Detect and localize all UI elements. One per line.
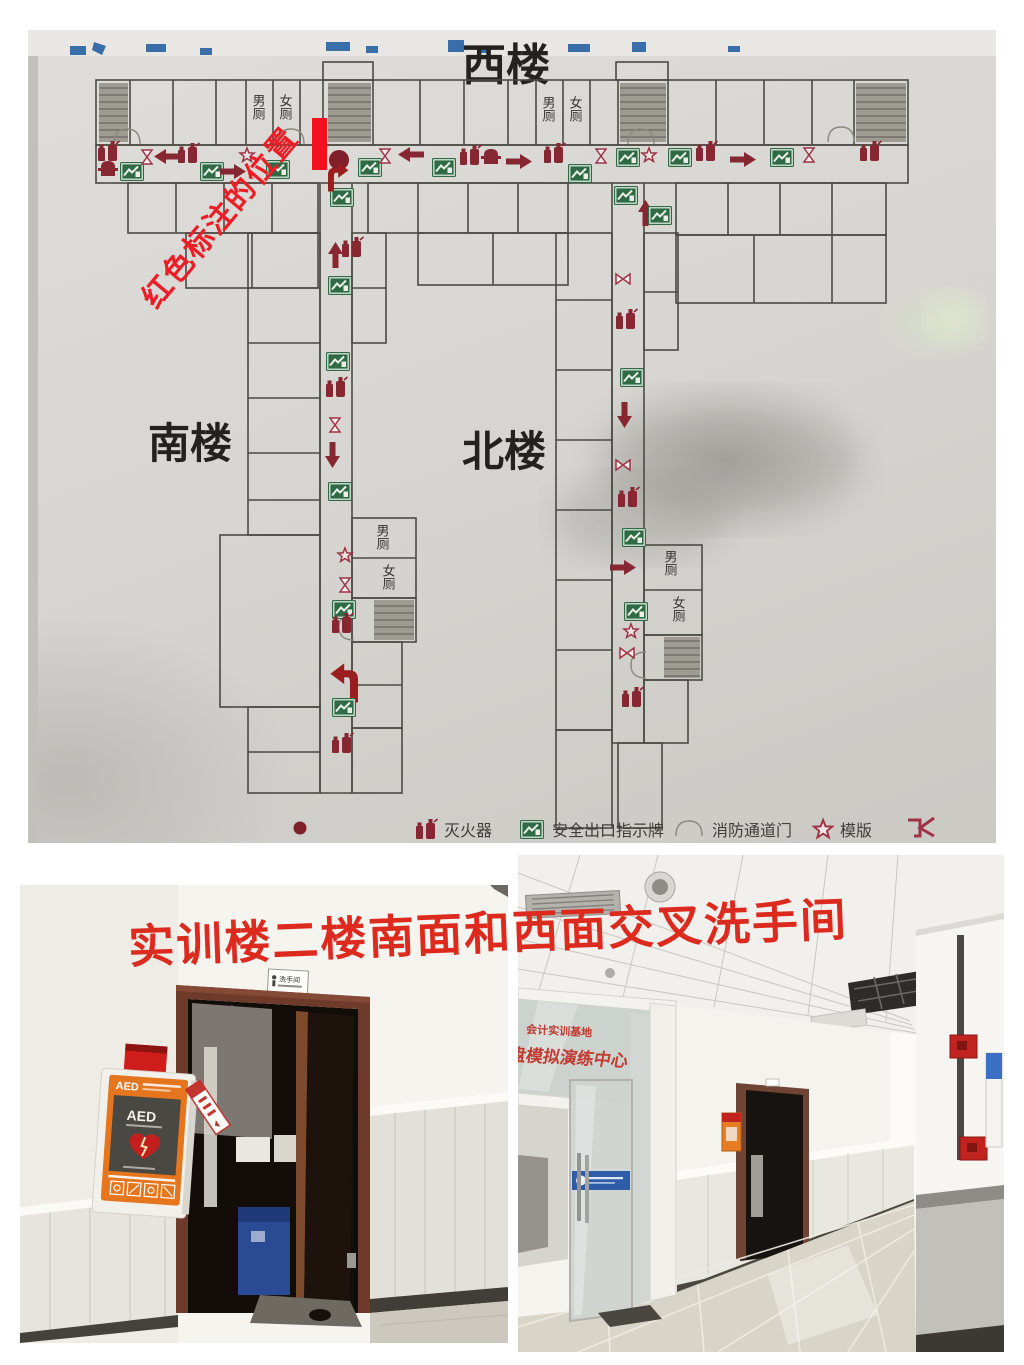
- legend-dot-icon: [294, 822, 307, 835]
- right-column: [916, 913, 1004, 1352]
- south-corridor-icons: [325, 237, 364, 753]
- legend-exit-sign-label: 安全出口指示牌: [552, 822, 664, 840]
- ceiling-vent-small: [525, 891, 620, 919]
- aed-header-text: AED: [115, 1080, 139, 1094]
- ceiling-dome-light: [645, 872, 675, 902]
- door-handle-bar-1: [577, 1153, 581, 1221]
- plan-legend: 灭火器 安全出口指示牌 消防通道门 模版: [294, 818, 935, 840]
- toilet-label-women-south: 女厕: [381, 563, 396, 590]
- interior-notice-1: [236, 1137, 270, 1162]
- toilet-label-women-w1: 女厕: [278, 93, 293, 120]
- toilet-label-men-w2: 男厕: [541, 96, 556, 122]
- door-handle-bar-2: [585, 1155, 589, 1223]
- toilet-label-men-north: 男厕: [663, 550, 678, 576]
- restroom-doorway: [176, 985, 370, 1327]
- red-position-marker: [312, 118, 327, 170]
- aed-device-text: AED: [126, 1107, 157, 1125]
- legend-extinguisher-icon: [416, 819, 438, 839]
- legend-fire-door-icon: [676, 821, 702, 836]
- wall-aed-box: [722, 1113, 741, 1151]
- legend-star-icon: [814, 820, 832, 837]
- column-sign-strip: [986, 1053, 1002, 1147]
- floor-plan-photo: 西楼: [28, 30, 996, 843]
- door-hinge: [347, 1253, 356, 1268]
- toilet-label-men-w1: 男厕: [251, 94, 266, 120]
- restroom-door-scene: 洗手间: [20, 885, 508, 1343]
- screenshot-collage: 西楼: [0, 0, 1024, 1365]
- column-lower-panel: [916, 1199, 1004, 1335]
- far-doorway: [736, 1079, 809, 1261]
- board-left-edge: [28, 30, 38, 843]
- restroom-door-sign: 洗手间: [267, 969, 308, 994]
- blue-bin: [238, 1207, 290, 1295]
- restroom-door-photo: 洗手间: [20, 885, 508, 1343]
- doorway-sign: [766, 1079, 779, 1086]
- legend-exit-sign-icon: [520, 820, 544, 839]
- legend-star-label: 模版: [840, 822, 872, 840]
- corridor-photo: 会计实训基地 沙盘模拟演练中心: [518, 855, 1004, 1352]
- legend-cropped-icon: [908, 818, 934, 836]
- ceiling-sprinkler: [605, 968, 615, 978]
- aed-window: [109, 1095, 181, 1175]
- glass-mullion: [650, 1003, 676, 1301]
- floor-plan-drawing: 西楼: [28, 30, 996, 843]
- door-stopper: [309, 1309, 331, 1321]
- red-annotation-text: 红色标注的位置: [135, 121, 305, 314]
- south-building-label: 南楼: [148, 420, 232, 467]
- toilet-label-women-w2: 女厕: [568, 95, 583, 122]
- toilet-label-men-south: 男厕: [375, 524, 390, 550]
- light-glare: [927, 292, 979, 344]
- legend-extinguisher-label: 灭火器: [444, 822, 492, 840]
- corridor-scene: 会计实训基地 沙盘模拟演练中心: [518, 855, 1004, 1352]
- legend-fire-door-label: 消防通道门: [712, 822, 792, 840]
- right-wainscot: [370, 1092, 508, 1343]
- object-inside-doorway: [751, 1155, 763, 1217]
- toilet-label-women-north: 女厕: [671, 595, 686, 622]
- board-shadow-reflection-2: [555, 476, 725, 560]
- north-building-label: 北楼: [462, 428, 546, 475]
- open-door-leaf: [304, 1012, 354, 1311]
